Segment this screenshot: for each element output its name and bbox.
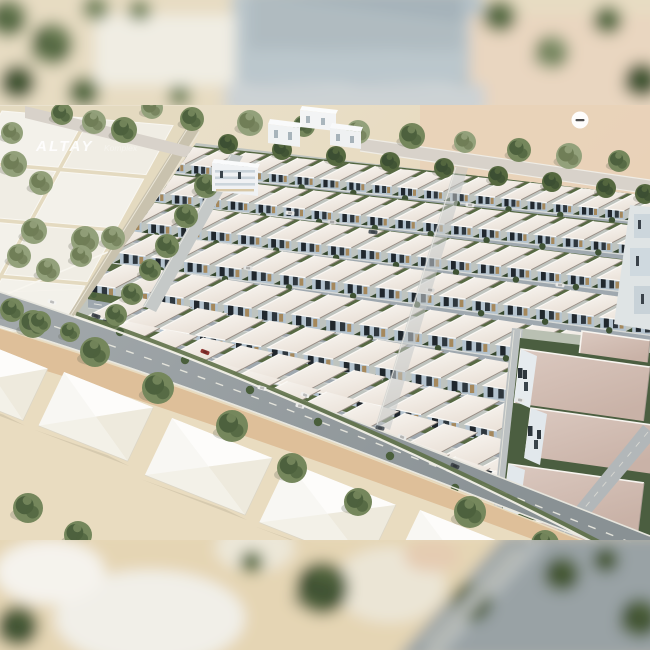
svg-text:ALTAY: ALTAY — [35, 138, 94, 155]
svg-text:Komplex: Komplex — [104, 143, 138, 153]
